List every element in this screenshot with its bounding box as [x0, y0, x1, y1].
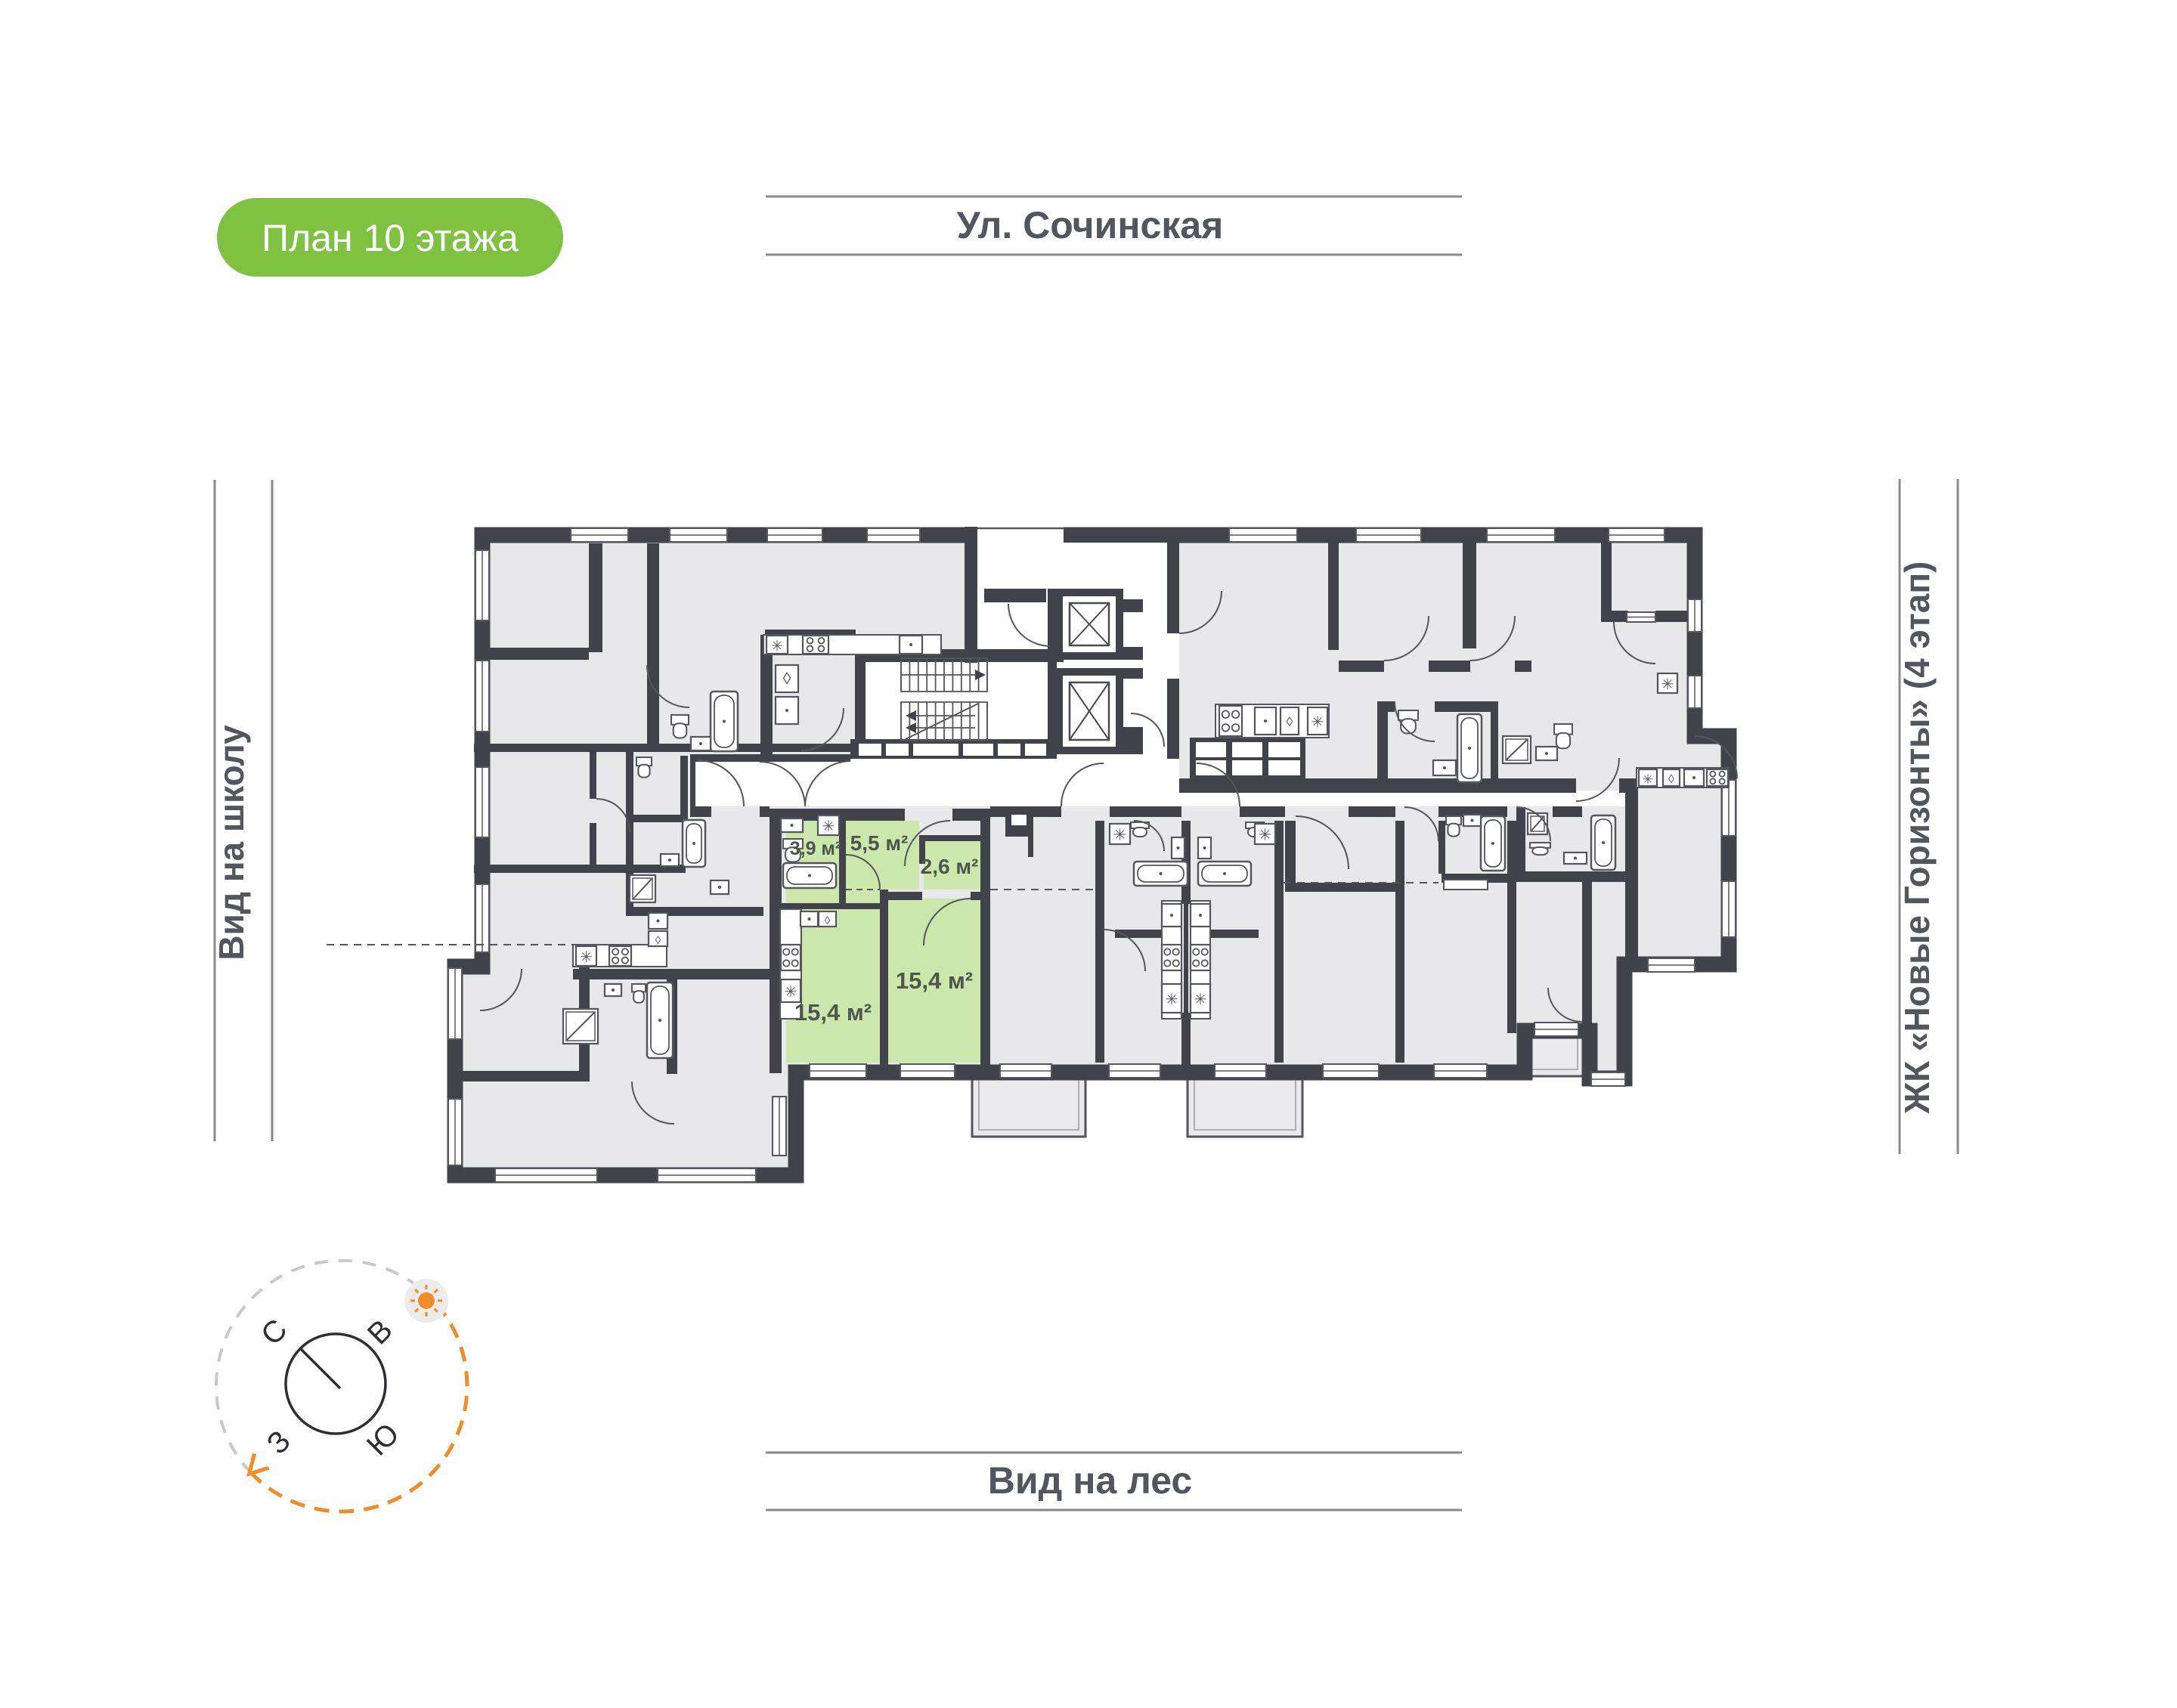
svg-text:Вид на школу: Вид на школу — [212, 725, 251, 961]
svg-text:3,9 м²: 3,9 м² — [790, 838, 842, 859]
svg-text:◊: ◊ — [1287, 714, 1293, 729]
svg-text:✳: ✳ — [1311, 714, 1324, 731]
svg-text:✳: ✳ — [1166, 992, 1178, 1008]
svg-text:15,4 м²: 15,4 м² — [794, 999, 872, 1026]
svg-text:С: С — [255, 1313, 294, 1352]
svg-text:✳: ✳ — [785, 984, 797, 1001]
svg-text:5,5 м²: 5,5 м² — [850, 831, 909, 855]
svg-text:15,4 м²: 15,4 м² — [896, 967, 973, 994]
svg-text:Вид на лес: Вид на лес — [988, 1459, 1192, 1502]
svg-text:✳: ✳ — [580, 949, 593, 966]
svg-text:◊: ◊ — [825, 914, 831, 927]
svg-text:План 10 этажа: План 10 этажа — [262, 217, 519, 259]
svg-text:✳: ✳ — [771, 639, 783, 654]
svg-text:З: З — [261, 1425, 297, 1461]
svg-text:◊: ◊ — [783, 669, 791, 688]
svg-text:✳: ✳ — [1113, 827, 1127, 844]
svg-text:ЖК «Новые Горизонты» (4 этап): ЖК «Новые Горизонты» (4 этап) — [1897, 562, 1937, 1115]
svg-text:✳: ✳ — [1259, 827, 1272, 844]
svg-text:✳: ✳ — [1661, 676, 1674, 693]
svg-text:◊: ◊ — [655, 934, 661, 947]
svg-text:2,6 м²: 2,6 м² — [921, 855, 979, 878]
svg-text:Ул. Сочинская: Ул. Сочинская — [957, 204, 1224, 246]
svg-text:✳: ✳ — [822, 818, 835, 835]
svg-text:◊: ◊ — [1668, 773, 1674, 786]
svg-text:✳: ✳ — [1643, 772, 1653, 787]
svg-text:✳: ✳ — [1194, 992, 1207, 1008]
